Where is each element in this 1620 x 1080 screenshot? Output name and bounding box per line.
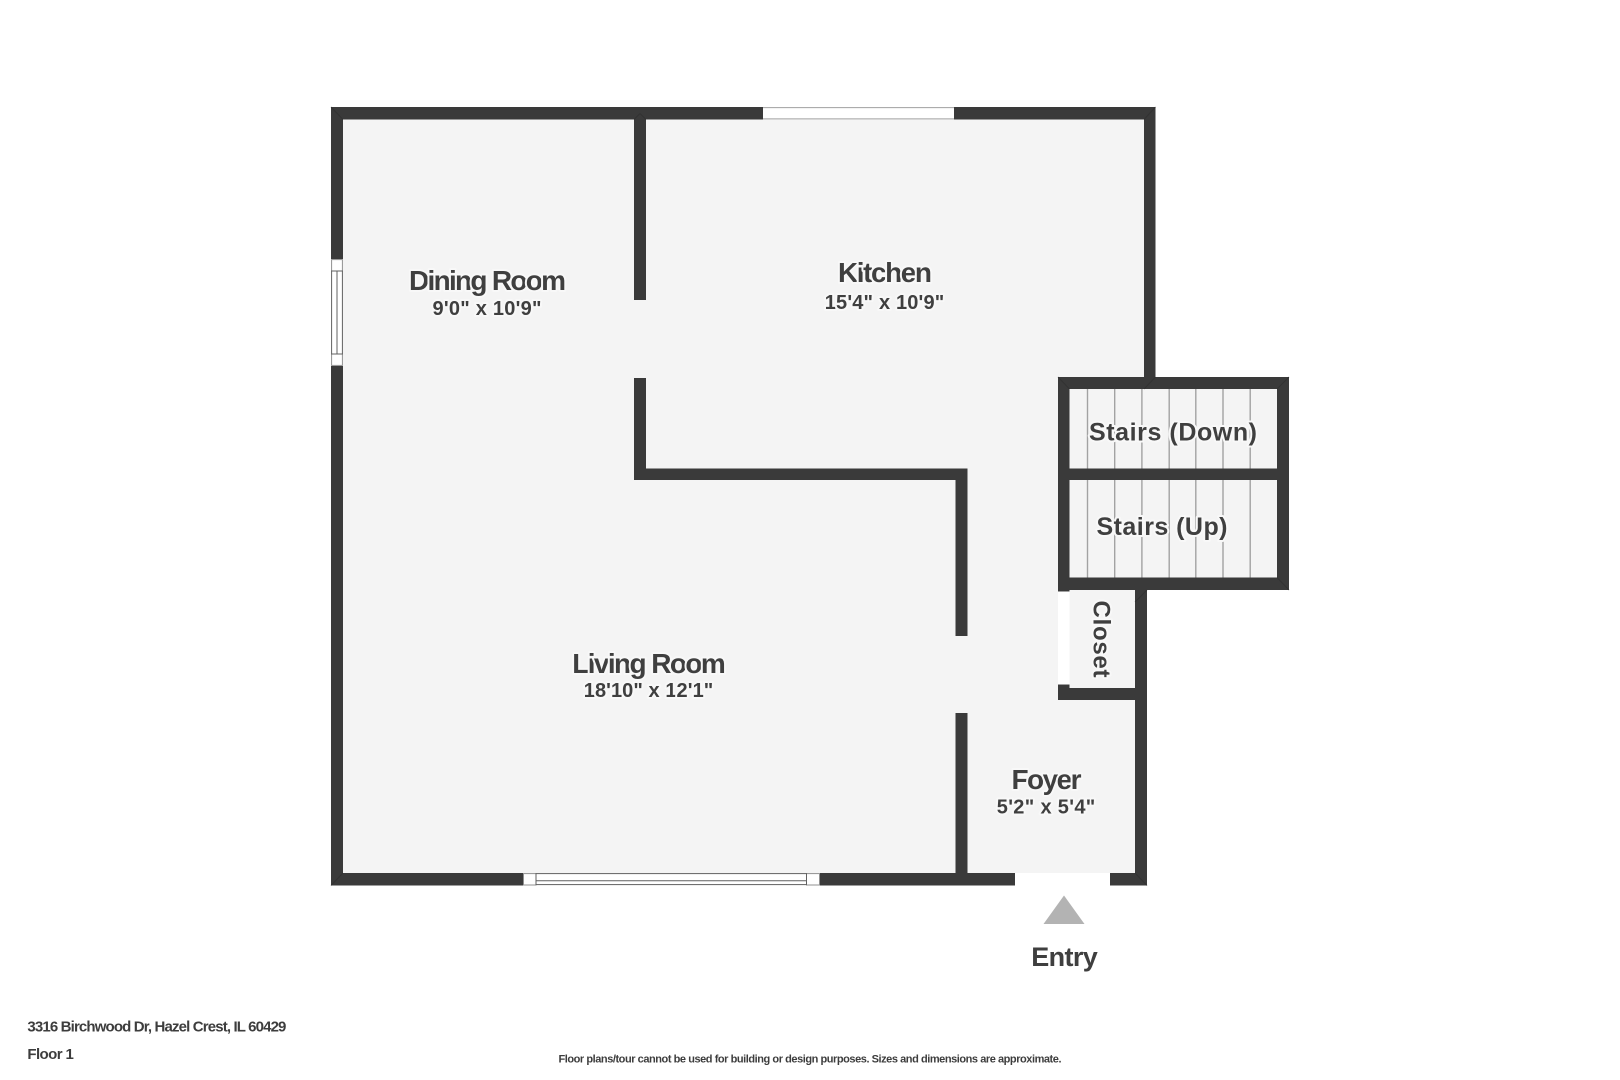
svg-text:15'4" x 10'9": 15'4" x 10'9"	[825, 292, 945, 314]
svg-text:Closet: Closet	[1088, 601, 1115, 678]
svg-text:5'2" x 5'4": 5'2" x 5'4"	[997, 797, 1096, 819]
svg-text:3316 Birchwood Dr, Hazel Crest: 3316 Birchwood Dr, Hazel Crest, IL 60429	[27, 1018, 286, 1035]
svg-text:Floor 1: Floor 1	[27, 1046, 74, 1063]
svg-text:Stairs (Up): Stairs (Up)	[1097, 513, 1228, 541]
svg-text:Stairs (Down): Stairs (Down)	[1089, 419, 1257, 447]
svg-text:Living Room: Living Room	[572, 648, 726, 679]
svg-text:Entry: Entry	[1031, 942, 1098, 972]
svg-text:Floor plans/tour cannot be use: Floor plans/tour cannot be used for buil…	[559, 1054, 1062, 1066]
svg-text:Kitchen: Kitchen	[838, 257, 932, 288]
svg-text:Foyer: Foyer	[1012, 764, 1082, 795]
svg-text:18'10" x 12'1": 18'10" x 12'1"	[584, 680, 714, 702]
svg-text:9'0" x 10'9": 9'0" x 10'9"	[433, 298, 542, 320]
svg-text:Dining Room: Dining Room	[409, 265, 566, 296]
